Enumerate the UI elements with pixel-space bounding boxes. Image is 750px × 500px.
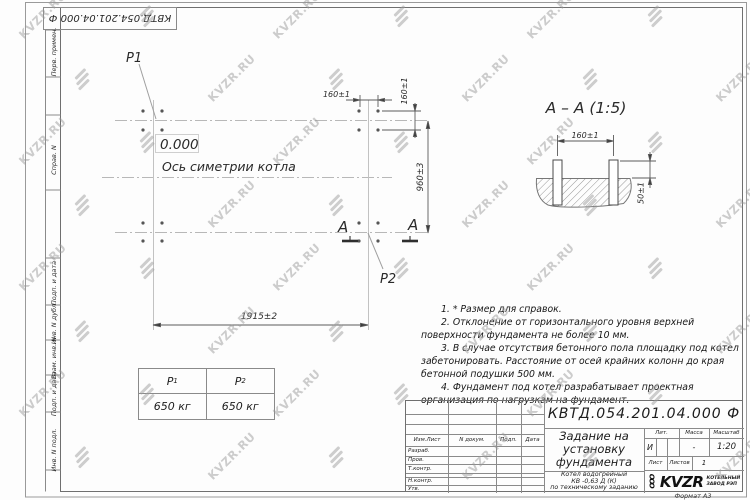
company-name: КОТЕЛЬНЫЙ ЗАВОД РЭП: [706, 476, 740, 486]
load-table-header-p1: Р1: [139, 369, 207, 394]
scale-value: 1:20: [709, 438, 744, 456]
section-cut-marks: [342, 236, 418, 241]
margin-label: Подп. и дата: [50, 261, 58, 305]
point-p1-label: Р1: [126, 51, 142, 66]
dim-960: 960±3: [416, 163, 426, 192]
section-letter-left: А: [337, 218, 348, 236]
col-header-data: Дата: [521, 434, 544, 446]
company-name-line: ЗАВОД РЭП: [706, 482, 740, 487]
section-letter-right: А: [407, 216, 418, 234]
row-label-prov: Пров.: [406, 456, 448, 464]
note-1: 1. * Размер для справок.: [421, 303, 743, 316]
margin-label: Инв. N подл.: [50, 429, 58, 472]
note-2: 2. Отклонение от горизонтального уровня …: [421, 316, 743, 342]
dim-1915: 1915±2: [241, 312, 277, 322]
notes-block: 1. * Размер для справок. 2. Отклонение о…: [421, 303, 743, 407]
load-table-header-p2: Р2: [207, 369, 275, 394]
row-label-nkontr: Н.контр.: [406, 477, 448, 485]
axis-label: Ось симетрии котла: [162, 159, 296, 174]
row-label-razrab: Разраб.: [406, 446, 448, 456]
p2-symbol: Р: [235, 375, 242, 388]
col-header-podp: Подп.: [496, 434, 521, 446]
corner-designation: КВТД.054.201.04.000 Ф: [48, 12, 171, 23]
plan-centerlines: [102, 121, 430, 233]
company-prefix: ООО: [648, 475, 656, 488]
company-logo: ООО KVZR КОТЕЛЬНЫЙ ЗАВОД РЭП: [644, 470, 744, 493]
p2-sub: 2: [241, 377, 245, 385]
anchor-stud: [553, 160, 562, 205]
document-title: Задание на установку фундамента: [545, 429, 643, 470]
note-3: 3. В случае отсутствия бетонного пола пл…: [421, 342, 743, 381]
elevation-value: 0.000: [160, 137, 199, 153]
margin-label: Перв. примен.: [50, 28, 58, 77]
load-table-value-p2: 650 кг: [207, 394, 275, 419]
document-title-line: фундамента: [556, 456, 632, 469]
company-abbr: KVZR: [660, 473, 704, 491]
title-block-designation: КВТД.054.201.04.000 Ф: [545, 401, 743, 427]
dim-protrusion: 50±1: [637, 182, 646, 204]
sheets-label: Листов: [667, 456, 692, 470]
p1-symbol: Р: [167, 375, 174, 388]
p1-sub: 1: [173, 377, 177, 385]
product-line: по техническому заданию: [550, 485, 638, 492]
lit-header: Лит.: [644, 428, 679, 438]
drawing-sheet: Перв. примен. Справ. N Подп. и дата Инв.…: [0, 0, 750, 500]
col-header-izm-list: Изм.Лист: [406, 434, 448, 446]
load-table: Р1 Р2 650 кг 650 кг: [138, 368, 275, 420]
section-view-title: А – А (1:5): [545, 99, 627, 117]
row-label-tkontr: Т.контр.: [406, 464, 448, 473]
title-block: КВТД.054.201.04.000 Ф Изм.Лист N докум. …: [405, 400, 743, 492]
format-label: Формат А3: [648, 492, 738, 500]
section-view: 160±1 50±1: [536, 131, 656, 207]
dim-160-right: 160±1: [400, 77, 409, 104]
anchor-stud: [609, 160, 618, 205]
col-header-doc: N докум.: [448, 434, 496, 446]
row-label-utv: Утв.: [406, 485, 448, 493]
mass-header: Масса: [679, 428, 709, 438]
mass-value: -: [679, 438, 709, 456]
scale-header: Масштаб: [709, 428, 744, 438]
sheet-label: Лист: [644, 456, 667, 470]
point-p2-label: Р2: [380, 272, 396, 287]
plan-dimensions: [153, 95, 430, 327]
lit-value: И: [644, 438, 656, 456]
logo-coil-icon: ООО: [648, 472, 657, 492]
product-description: Котел водогрейный КВ -0,63 Д (К) по техн…: [545, 471, 643, 493]
dim-stud-spacing: 160±1: [571, 131, 598, 140]
load-table-value-p1: 650 кг: [139, 394, 207, 419]
margin-label: Подп. и дата: [50, 372, 58, 416]
sheets-value: 1: [692, 456, 716, 470]
margin-label: Справ. N: [50, 145, 58, 175]
margin-labels: Перв. примен. Справ. N Подп. и дата Инв.…: [50, 28, 58, 472]
dim-160-top: 160±1: [323, 90, 350, 99]
